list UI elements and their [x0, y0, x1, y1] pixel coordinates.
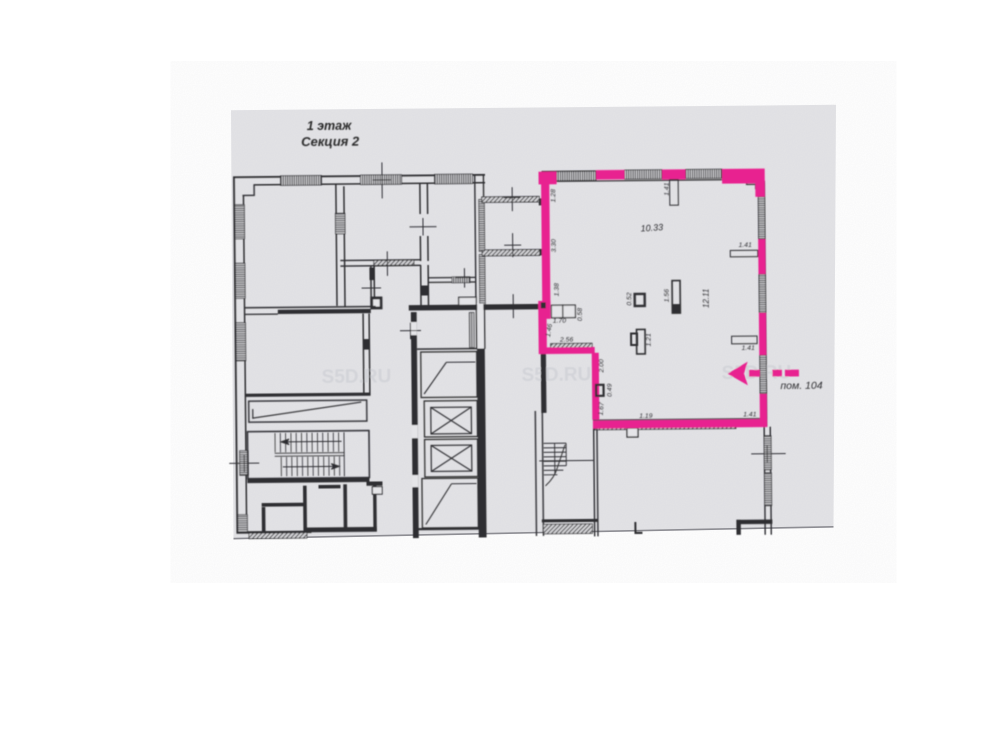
svg-text:0.52: 0.52: [626, 292, 633, 306]
svg-text:Секция 2: Секция 2: [301, 134, 360, 150]
svg-text:12.11: 12.11: [702, 289, 711, 309]
svg-text:1.28: 1.28: [550, 189, 557, 203]
svg-text:1.56: 1.56: [664, 289, 671, 303]
svg-text:1.67: 1.67: [598, 402, 606, 416]
svg-text:0.49: 0.49: [607, 383, 614, 397]
svg-text:1.19: 1.19: [639, 413, 653, 420]
svg-text:1.41: 1.41: [664, 182, 671, 196]
svg-text:1 этаж: 1 этаж: [307, 119, 353, 133]
svg-text:1.21: 1.21: [646, 333, 653, 347]
svg-text:3.30: 3.30: [551, 239, 558, 253]
svg-text:1.41: 1.41: [743, 411, 757, 418]
svg-text:1.41: 1.41: [742, 345, 756, 352]
svg-text:1.38: 1.38: [554, 283, 561, 297]
svg-text:0.58: 0.58: [577, 308, 584, 322]
svg-text:2.00: 2.00: [598, 359, 605, 374]
svg-text:S5D.RU: S5D.RU: [322, 366, 392, 388]
svg-text:1.70: 1.70: [553, 318, 567, 325]
svg-text:пом. 104: пом. 104: [780, 380, 822, 392]
svg-text:2.56: 2.56: [559, 337, 574, 344]
svg-text:S5D.RU: S5D.RU: [521, 364, 591, 386]
svg-text:1.41: 1.41: [739, 242, 753, 249]
svg-text:10.33: 10.33: [640, 222, 663, 233]
